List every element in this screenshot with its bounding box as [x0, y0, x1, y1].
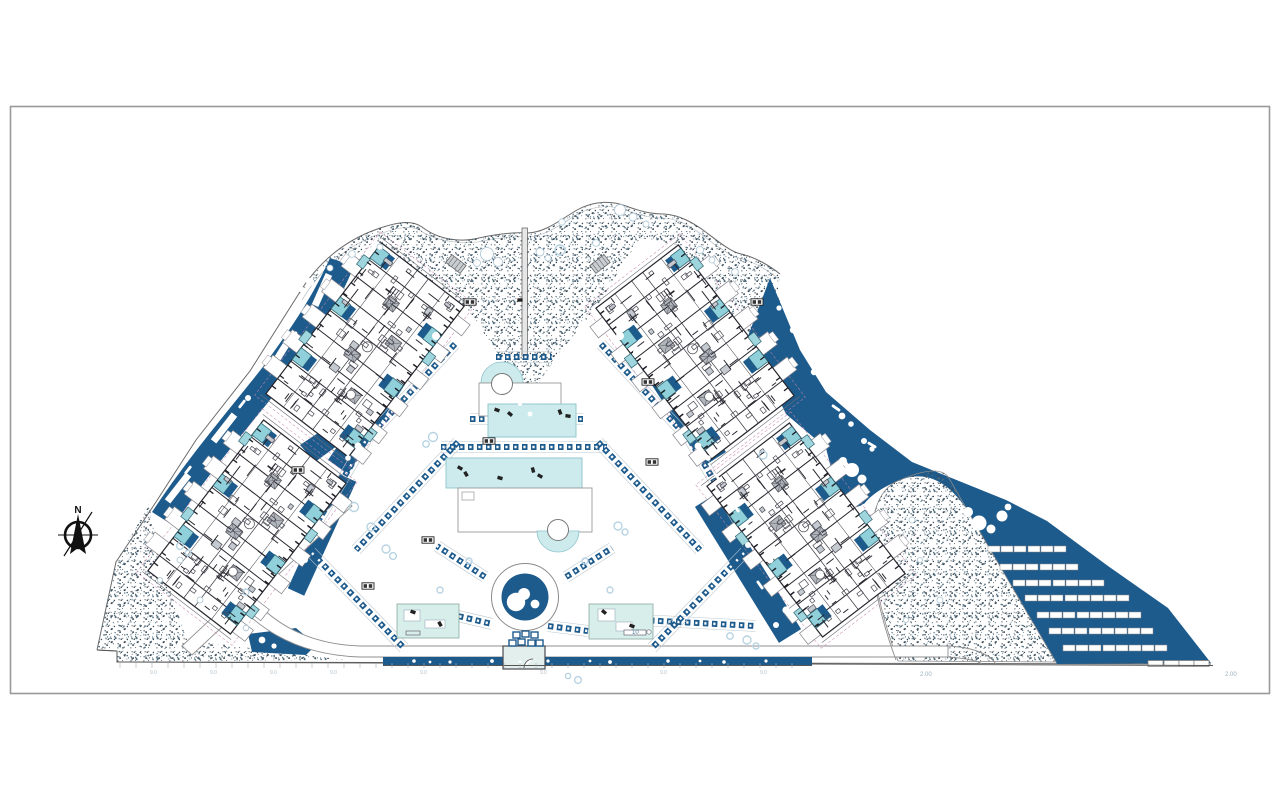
- svg-text:9.0: 9.0: [420, 670, 427, 676]
- svg-text:9.0: 9.0: [660, 670, 667, 676]
- svg-text:2.00: 2.00: [1225, 672, 1237, 678]
- svg-text:N: N: [74, 505, 81, 516]
- svg-text:9.0: 9.0: [540, 670, 547, 676]
- svg-text:9.0: 9.0: [210, 670, 217, 676]
- svg-text:9.0: 9.0: [270, 670, 277, 676]
- svg-text:9.0: 9.0: [760, 670, 767, 676]
- svg-text:9.0: 9.0: [150, 670, 157, 676]
- svg-text:9.0: 9.0: [330, 670, 337, 676]
- svg-text:10: 10: [632, 630, 639, 636]
- svg-text:2.00: 2.00: [920, 672, 932, 678]
